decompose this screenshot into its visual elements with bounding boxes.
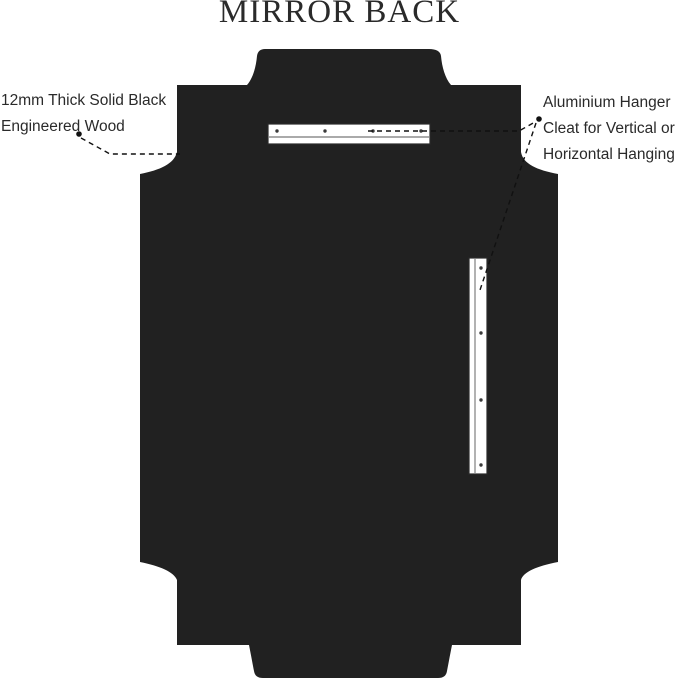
diagram-canvas: MIRROR BACK 12mm T xyxy=(0,0,679,687)
label-line: Cleat for Vertical or xyxy=(543,116,675,142)
label-line: Aluminium Hanger xyxy=(543,90,675,116)
screw-hole xyxy=(275,129,278,132)
label-line: Engineered Wood xyxy=(1,114,166,140)
horizontal-cleat-body xyxy=(268,124,430,144)
vertical-hanger-cleat xyxy=(469,258,487,474)
label-line: Horizontal Hanging xyxy=(543,142,675,168)
screw-hole xyxy=(479,266,482,269)
label-hanger-cleat: Aluminium Hanger Cleat for Vertical or H… xyxy=(543,90,675,168)
label-line: 12mm Thick Solid Black xyxy=(1,88,166,114)
leader-line-left xyxy=(81,138,180,154)
screw-hole xyxy=(323,129,326,132)
label-engineered-wood: 12mm Thick Solid Black Engineered Wood xyxy=(1,88,166,140)
leader-dot-right xyxy=(536,116,542,122)
screw-hole xyxy=(479,398,482,401)
vertical-cleat-body xyxy=(469,258,487,474)
horizontal-hanger-cleat xyxy=(268,124,430,144)
screw-hole xyxy=(479,331,482,334)
screw-hole xyxy=(479,463,482,466)
